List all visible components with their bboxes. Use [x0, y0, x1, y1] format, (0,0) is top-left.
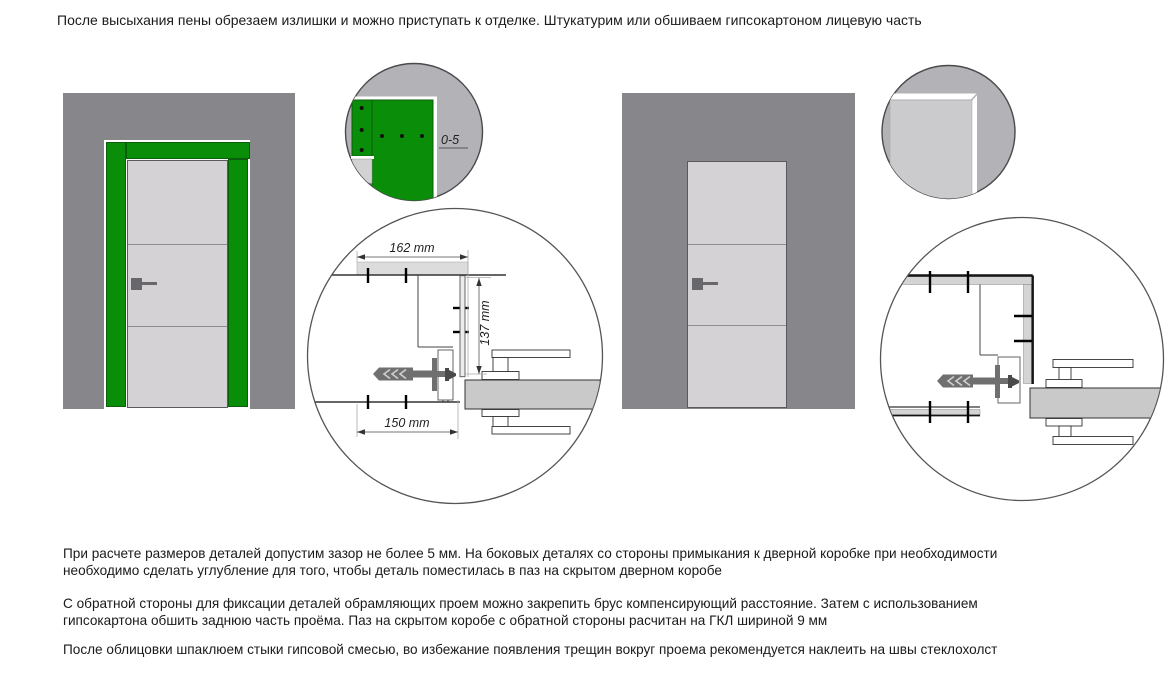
- door-handle: [692, 278, 703, 290]
- header-text: После высыхания пены обрезаем излишки и …: [57, 11, 922, 29]
- door-panel-divider: [688, 244, 786, 245]
- footer-paragraph-2: С обратной стороны для фиксации деталей …: [63, 595, 978, 629]
- svg-text:137 mm: 137 mm: [478, 300, 492, 345]
- green-board-face: [372, 100, 433, 202]
- gap-detail-circle: 0-5: [344, 62, 486, 204]
- frame-front-profile: [460, 276, 465, 377]
- footer-paragraph-3: После облицовки шпаклюем стыки гипсовой …: [63, 641, 997, 658]
- cladding-top: [894, 277, 1032, 285]
- green-frame-left-board: [106, 142, 126, 407]
- section-door-leaf: [1030, 388, 1162, 418]
- gypsum-panel: [890, 100, 972, 200]
- section-circle-dimensions: 162 mm 137 mm 150 mm: [305, 206, 607, 508]
- footer-line: С обратной стороны для фиксации деталей …: [63, 595, 978, 612]
- gap-label: 0-5: [441, 133, 459, 147]
- door-panel-divider: [128, 244, 227, 245]
- door-handle-bar: [142, 282, 157, 285]
- plaster-detail-drawing: [880, 94, 978, 202]
- illustration-page: После высыхания пены обрезаем излишки и …: [0, 0, 1170, 681]
- svg-text:150 mm: 150 mm: [384, 416, 429, 430]
- footer-paragraph-1: При расчете размеров деталей допустим за…: [63, 545, 997, 579]
- plaster-detail-circle: [880, 64, 1018, 202]
- left-door-leaf: [127, 160, 228, 408]
- footer-line: При расчете размеров деталей допустим за…: [63, 545, 997, 562]
- cladding-side: [1024, 285, 1032, 384]
- green-frame-top-board: [126, 142, 250, 159]
- foam-block: [352, 159, 372, 183]
- footer-line: После облицовки шпаклюем стыки гипсовой …: [63, 641, 997, 658]
- svg-text:162 mm: 162 mm: [389, 241, 434, 255]
- door-panel-divider: [688, 325, 786, 326]
- finish-layer: [357, 262, 468, 275]
- door-handle-bar: [703, 282, 718, 285]
- footer-line: необходимо сделать углубление для того, …: [63, 562, 997, 579]
- section-door-leaf: [465, 380, 600, 409]
- door-handle: [131, 278, 142, 290]
- section-circle-clad: [879, 216, 1167, 506]
- footer-line: гипсокартона обшить заднюю часть проёма.…: [63, 612, 978, 629]
- right-door-leaf: [687, 161, 787, 408]
- green-frame-right-board: [228, 159, 248, 407]
- door-panel-divider: [128, 326, 227, 327]
